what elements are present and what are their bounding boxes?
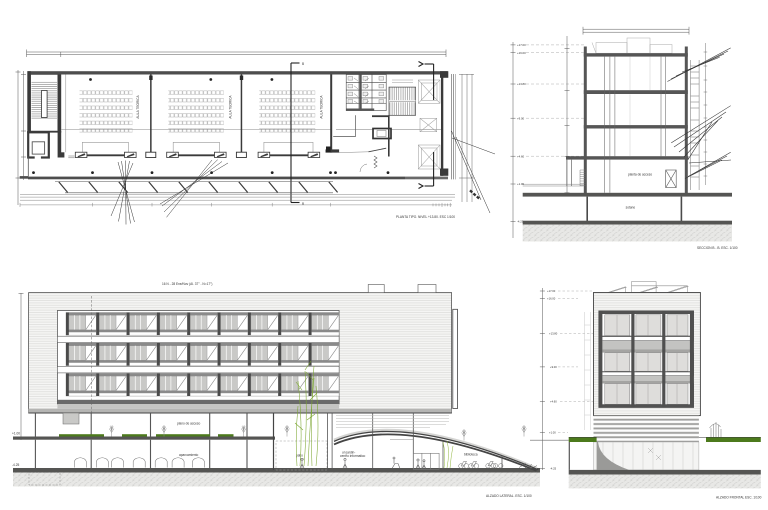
svg-text:+9.00: +9.00 (517, 116, 525, 120)
svg-text:ALZADO LATERAL. ESC. 1/100: ALZADO LATERAL. ESC. 1/100 (486, 494, 532, 498)
svg-text:ALZADO FRONTAL ESC. 1/100: ALZADO FRONTAL ESC. 1/100 (716, 496, 762, 500)
svg-text:patio: patio (296, 454, 303, 458)
svg-text:+13.80: +13.80 (517, 82, 526, 86)
svg-text:-4.25: -4.25 (550, 466, 557, 470)
svg-text:+16.00: +16.00 (547, 297, 556, 301)
svg-text:-4.25: -4.25 (12, 463, 19, 467)
svg-text:SECCION B - B. ESC. 1/100: SECCION B - B. ESC. 1/100 (697, 246, 738, 250)
svg-text:16 N - 28 Ene/Nov (Al. 37° - N: 16 N - 28 Ene/Nov (Al. 37° - N=17°) (162, 282, 212, 286)
svg-text:+4.60: +4.60 (550, 400, 557, 404)
svg-text:+16.00: +16.00 (517, 51, 526, 55)
svg-text:+9.00: +9.00 (550, 365, 557, 369)
svg-text:sotano: sotano (626, 206, 636, 210)
svg-text:aparcamiento: aparcamiento (179, 453, 199, 457)
svg-text:+17.00: +17.00 (517, 43, 526, 47)
svg-text:+4.60: +4.60 (517, 154, 525, 158)
svg-text:plano de acceso: plano de acceso (177, 422, 200, 426)
svg-text:centro informatico: centro informatico (340, 454, 366, 458)
svg-text:PLANTA TIPO. NIVEL +13.80. ESC: PLANTA TIPO. NIVEL +13.80. ESC 1/100 (396, 215, 455, 219)
svg-text:+13.80: +13.80 (549, 332, 558, 336)
svg-text:+1.00: +1.00 (549, 431, 556, 435)
svg-text:AULA TEORICA: AULA TEORICA (229, 95, 233, 119)
svg-text:planta de acceso: planta de acceso (628, 173, 652, 177)
svg-text:B: B (302, 202, 304, 206)
svg-text:B: B (302, 62, 304, 66)
svg-text:+1.00: +1.00 (12, 432, 20, 436)
svg-text:biblioteca: biblioteca (464, 453, 478, 457)
svg-text:AULA TEORICA: AULA TEORICA (320, 95, 324, 119)
svg-text:+17.00: +17.00 (547, 289, 556, 293)
svg-text:AULA TEORICA: AULA TEORICA (136, 95, 140, 119)
